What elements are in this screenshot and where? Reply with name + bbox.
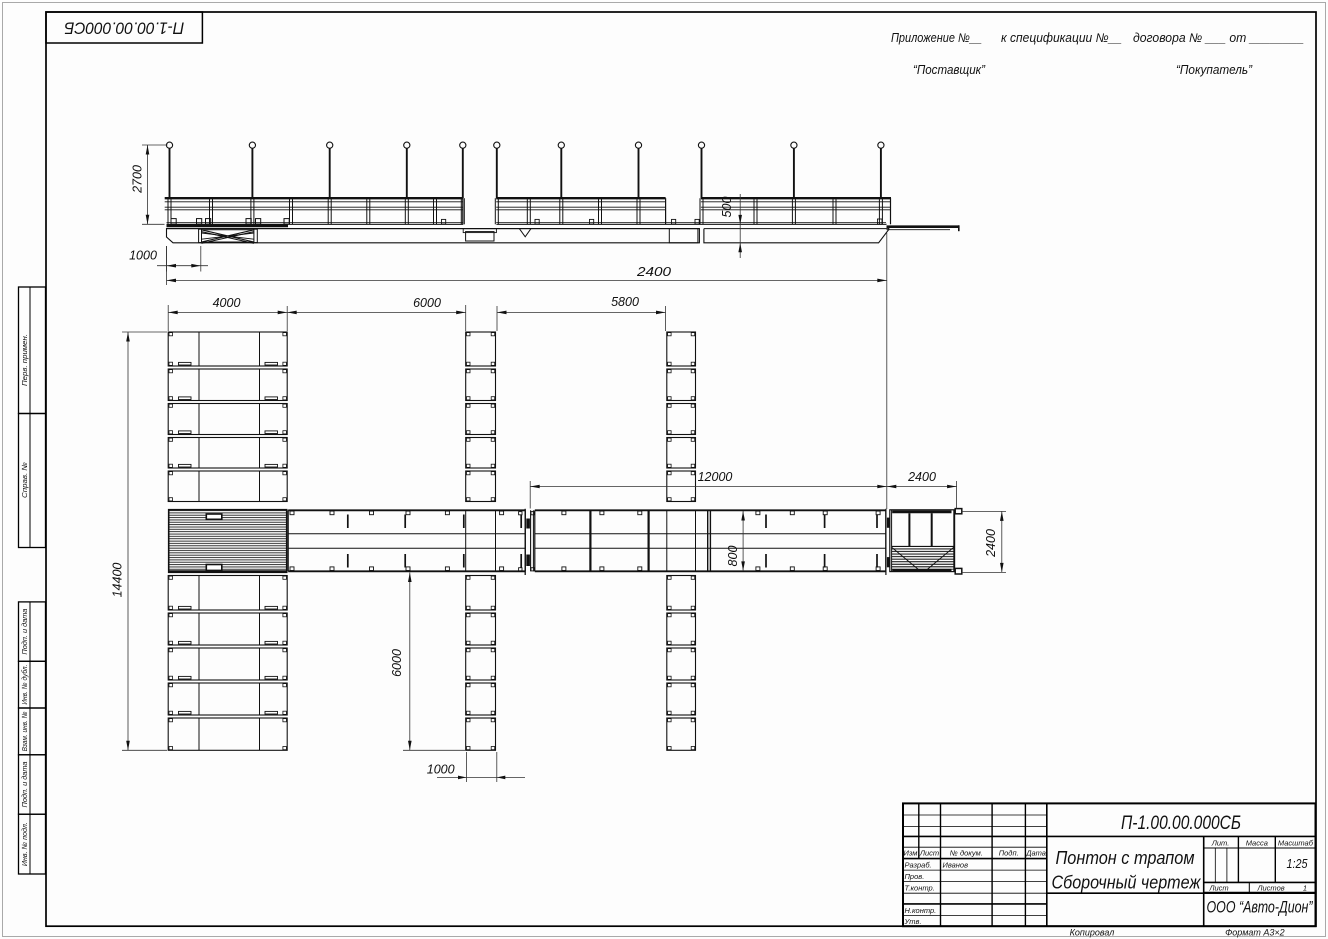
svg-text:Дата: Дата [1025,849,1046,858]
svg-text:2700: 2700 [131,165,145,194]
svg-text:12000: 12000 [698,470,733,484]
svg-text:к спецификации №__: к спецификации №__ [1001,31,1122,45]
svg-text:Подп. и дата: Подп. и дата [20,609,29,655]
svg-text:500: 500 [720,197,734,218]
svg-text:П-1.00.00.000СБ: П-1.00.00.000СБ [64,18,184,37]
svg-text:2400: 2400 [636,265,671,279]
svg-text:Утв.: Утв. [904,917,922,926]
svg-text:1:25: 1:25 [1287,856,1309,871]
svg-text:“Покупатель”: “Покупатель” [1176,63,1253,77]
svg-text:1: 1 [1303,884,1307,893]
svg-text:1000: 1000 [129,249,157,263]
svg-text:Лист: Лист [1208,884,1228,893]
svg-text:Понтон с трапом: Понтон с трапом [1056,847,1195,868]
svg-text:Листов: Листов [1256,884,1284,893]
svg-text:Подп.: Подп. [999,849,1019,858]
svg-text:№ докум.: № докум. [950,849,983,858]
svg-text:Пров.: Пров. [905,872,925,881]
svg-text:П-1.00.00.000СБ: П-1.00.00.000СБ [1121,812,1241,834]
svg-text:Приложение №__: Приложение №__ [891,31,982,45]
svg-text:ООО “Авто-Дион”: ООО “Авто-Дион” [1207,899,1314,917]
svg-text:1000: 1000 [427,763,455,777]
svg-text:Копировал: Копировал [1070,928,1115,938]
svg-text:Иванов: Иванов [943,861,969,870]
svg-text:Т.контр.: Т.контр. [905,884,935,893]
svg-text:6000: 6000 [390,649,404,677]
svg-text:6000: 6000 [413,296,441,310]
svg-text:Инв. № подл.: Инв. № подл. [20,822,29,866]
svg-text:Масса: Масса [1246,838,1268,847]
svg-text:Справ. №: Справ. № [20,462,29,498]
svg-text:4000: 4000 [213,296,241,310]
svg-text:Масштаб: Масштаб [1278,838,1314,847]
svg-text:Лист: Лист [919,849,939,858]
svg-text:Н.контр.: Н.контр. [905,906,937,915]
svg-text:Взам. инв. №: Взам. инв. № [20,711,29,751]
svg-text:Изм: Изм [904,849,918,858]
svg-text:Разраб.: Разраб. [905,861,932,870]
svg-text:договора № ___ от ________: договора № ___ от ________ [1133,31,1304,45]
svg-text:5800: 5800 [611,295,639,309]
svg-text:“Поставщик”: “Поставщик” [913,63,986,77]
svg-text:Сборочный чертеж: Сборочный чертеж [1052,872,1202,893]
svg-text:А3×2: А3×2 [1262,928,1284,938]
svg-text:Формат: Формат [1225,928,1261,938]
svg-text:2400: 2400 [907,470,936,484]
svg-text:Лит.: Лит. [1211,838,1230,847]
svg-text:2400: 2400 [984,529,998,558]
svg-text:Перв. примен.: Перв. примен. [20,334,29,386]
svg-text:Подп. и дата: Подп. и дата [20,762,29,808]
svg-text:800: 800 [726,546,740,567]
svg-text:14400: 14400 [111,563,125,598]
svg-text:Инв. № дубл.: Инв. № дубл. [20,665,29,705]
